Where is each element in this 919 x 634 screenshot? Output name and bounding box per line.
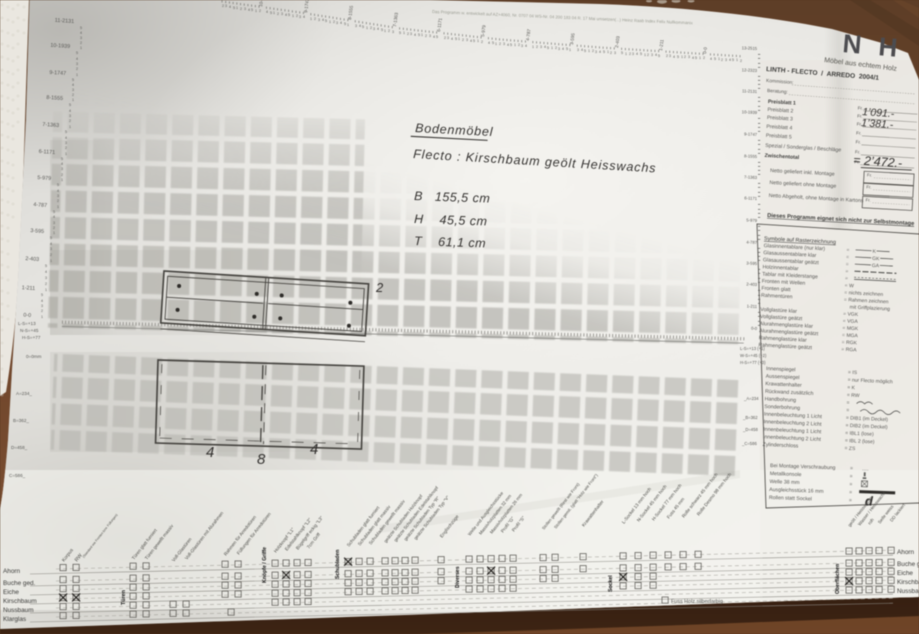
svg-text:4: 4 <box>562 47 564 51</box>
svg-text:1: 1 <box>273 11 275 15</box>
svg-text:4: 4 <box>581 48 583 52</box>
svg-text:4-787: 4-787 <box>746 239 758 245</box>
svg-text:4: 4 <box>310 441 318 458</box>
svg-text:5: 5 <box>61 157 63 161</box>
svg-text:13-2515: 13-2515 <box>742 45 758 51</box>
svg-text:=: = <box>849 498 852 504</box>
svg-text:2: 2 <box>647 53 649 57</box>
svg-text:5: 5 <box>658 54 660 58</box>
svg-text:1: 1 <box>57 205 59 209</box>
svg-text:6-1171: 6-1171 <box>39 149 56 156</box>
svg-text:4: 4 <box>76 57 78 61</box>
svg-text:4: 4 <box>266 10 268 14</box>
svg-text:4: 4 <box>248 8 250 12</box>
svg-text:4: 4 <box>53 215 55 219</box>
svg-text:1: 1 <box>292 14 294 18</box>
svg-text:H-S=+77 (+3): H-S=+77 (+3) <box>740 360 766 365</box>
svg-text:1: 1 <box>514 43 516 47</box>
svg-text:5: 5 <box>45 264 47 268</box>
svg-text:7-1363: 7-1363 <box>42 122 59 129</box>
svg-text:2: 2 <box>592 49 594 53</box>
svg-text:2: 2 <box>69 119 71 123</box>
svg-text:1: 1 <box>366 26 368 30</box>
svg-text:2: 2 <box>555 46 557 50</box>
svg-text:1: 1 <box>551 46 553 50</box>
svg-text:2: 2 <box>375 280 384 295</box>
svg-text:1: 1 <box>569 48 571 52</box>
svg-text:3: 3 <box>57 194 59 198</box>
svg-text:3-595: 3-595 <box>30 228 44 235</box>
svg-text:2: 2 <box>740 59 742 63</box>
svg-text:2: 2 <box>41 309 43 313</box>
svg-text:2: 2 <box>61 173 63 177</box>
svg-text:5: 5 <box>566 47 568 51</box>
svg-text:= MGK: = MGK <box>842 325 859 332</box>
svg-text:5-979: 5-979 <box>37 175 51 182</box>
svg-text:11-2131: 11-2131 <box>742 88 758 94</box>
svg-text:A=234_: A=234_ <box>16 391 32 396</box>
svg-text:1: 1 <box>384 29 386 33</box>
svg-text:5: 5 <box>57 183 59 187</box>
svg-text:5: 5 <box>381 28 383 32</box>
svg-text:5: 5 <box>325 19 327 23</box>
svg-text:5: 5 <box>344 22 346 26</box>
svg-text:‥‥: ‥‥ <box>862 466 869 472</box>
svg-text:3: 3 <box>318 18 320 22</box>
svg-text:Fr.: Fr. <box>855 139 861 144</box>
svg-text:4: 4 <box>61 162 63 166</box>
svg-text:2: 2 <box>259 9 261 13</box>
svg-text:4: 4 <box>655 53 657 57</box>
svg-text:3: 3 <box>614 51 616 55</box>
svg-text:9-1747: 9-1747 <box>49 70 66 77</box>
svg-text:B=362_: B=362_ <box>13 418 29 423</box>
svg-text:3: 3 <box>651 53 653 57</box>
svg-text:Buche ged.: Buche ged. <box>897 561 919 568</box>
svg-text:2: 2 <box>76 67 78 71</box>
svg-text:W-S=+45 (+2): W-S=+45 (+2) <box>740 353 767 358</box>
svg-text:1: 1 <box>80 46 82 50</box>
svg-text:5: 5 <box>69 103 71 107</box>
svg-text:3: 3 <box>45 276 47 280</box>
svg-text:Kirschbaum: Kirschbaum <box>3 598 37 605</box>
svg-text:=: = <box>849 490 852 496</box>
svg-text:4: 4 <box>285 13 287 17</box>
svg-text:4: 4 <box>692 56 694 60</box>
svg-text:4: 4 <box>303 15 305 19</box>
svg-text:Fr.: Fr. <box>856 130 862 135</box>
svg-text:Ahorn: Ahorn <box>897 549 914 556</box>
svg-text:= K: = K <box>847 385 856 391</box>
svg-text:T 61,1 cm: T 61,1 cm <box>414 234 486 251</box>
svg-text:1: 1 <box>76 73 78 77</box>
svg-text:8-1555: 8-1555 <box>46 95 63 102</box>
svg-text:3: 3 <box>447 36 449 40</box>
svg-text:0-0: 0-0 <box>751 326 758 331</box>
svg-text:1: 1 <box>61 178 63 182</box>
svg-text:2: 2 <box>222 4 224 8</box>
svg-text:4: 4 <box>377 27 379 31</box>
svg-text:4: 4 <box>340 21 342 25</box>
svg-text:_B=362: _B=362 <box>742 415 758 420</box>
svg-text:= IS: = IS <box>848 370 858 376</box>
svg-text:5: 5 <box>695 56 697 60</box>
svg-text:3: 3 <box>50 247 52 251</box>
svg-text:2: 2 <box>72 93 74 97</box>
svg-text:2: 2 <box>536 45 538 49</box>
svg-text:3: 3 <box>595 50 597 54</box>
svg-text:3: 3 <box>521 44 523 48</box>
svg-text:5: 5 <box>76 51 78 55</box>
svg-text:5: 5 <box>473 39 475 43</box>
svg-text:5: 5 <box>251 8 253 12</box>
svg-text:3: 3 <box>299 15 301 19</box>
svg-text:4: 4 <box>359 24 361 28</box>
svg-text:1: 1 <box>65 152 67 156</box>
svg-text:_A=234: _A=234 <box>743 396 759 401</box>
svg-text:2: 2 <box>629 52 631 56</box>
svg-text:4: 4 <box>470 39 472 43</box>
svg-text:3: 3 <box>244 7 246 11</box>
svg-text:2: 2 <box>277 12 279 16</box>
svg-text:1: 1 <box>736 58 738 62</box>
svg-text:Sockel: Sockel <box>608 575 614 592</box>
svg-text:5: 5 <box>510 43 512 47</box>
svg-text:=: = <box>849 482 852 488</box>
svg-text:3: 3 <box>53 221 55 225</box>
svg-text:4: 4 <box>544 45 546 49</box>
svg-text:= VGA: = VGA <box>843 318 859 325</box>
svg-text:2: 2 <box>407 32 409 36</box>
svg-text:3: 3 <box>41 304 43 308</box>
svg-text:=: = <box>850 466 853 472</box>
svg-text:4: 4 <box>729 58 731 62</box>
svg-text:4: 4 <box>206 444 214 461</box>
svg-text:Fuss Holz silberfarbig: Fuss Holz silberfarbig <box>671 599 723 605</box>
svg-text:2: 2 <box>57 199 59 203</box>
svg-text:3: 3 <box>466 38 468 42</box>
svg-text:N: N <box>841 28 862 60</box>
svg-text:5: 5 <box>677 55 679 59</box>
svg-text:GK: GK <box>872 256 880 262</box>
svg-text:Eiche: Eiche <box>897 570 913 577</box>
svg-text:1: 1 <box>607 50 609 54</box>
svg-text:4: 4 <box>414 33 416 37</box>
svg-text:4: 4 <box>72 83 74 87</box>
svg-text:3: 3 <box>688 55 690 59</box>
svg-text:4: 4 <box>433 35 435 39</box>
svg-text:3: 3 <box>558 47 560 51</box>
svg-text:= RW: = RW <box>847 393 860 400</box>
svg-text:5: 5 <box>640 52 642 56</box>
svg-text:_D=458: _D=458 <box>742 427 758 432</box>
svg-text:5: 5 <box>270 11 272 15</box>
svg-text:Oberflächen: Oberflächen <box>835 564 841 594</box>
svg-text:1: 1 <box>477 39 479 43</box>
svg-text:2: 2 <box>333 20 335 24</box>
svg-text:5: 5 <box>233 6 235 10</box>
svg-text:1: 1 <box>347 23 349 27</box>
svg-text:1-211: 1-211 <box>22 285 36 292</box>
svg-text:GA: GA <box>872 263 880 269</box>
svg-text:5: 5 <box>492 41 494 45</box>
svg-text:=: = <box>850 474 853 480</box>
svg-text:C=586_: C=586_ <box>9 473 26 478</box>
svg-text:6-1171: 6-1171 <box>744 195 758 201</box>
svg-text:_C=586: _C=586 <box>741 441 757 446</box>
svg-text:4: 4 <box>45 270 47 274</box>
svg-text:4: 4 <box>69 109 71 113</box>
svg-text:5: 5 <box>65 130 67 134</box>
svg-text:2: 2 <box>314 17 316 21</box>
svg-text:Diverses: Diverses <box>455 566 461 588</box>
svg-text:=: = <box>846 262 849 268</box>
svg-text:2: 2 <box>721 58 723 62</box>
svg-text:Nussbaum: Nussbaum <box>897 588 919 595</box>
svg-text:5: 5 <box>584 49 586 53</box>
svg-text:3: 3 <box>281 12 283 16</box>
svg-text:Klarglas: Klarglas <box>3 616 26 623</box>
svg-text:=: = <box>845 276 848 282</box>
svg-text:D=458_: D=458_ <box>11 445 28 450</box>
svg-text:= MGA: = MGA <box>842 333 859 340</box>
svg-text:H-S=+77: H-S=+77 <box>22 335 41 340</box>
svg-text:1: 1 <box>495 42 497 46</box>
svg-text:3: 3 <box>69 114 71 118</box>
svg-text:1: 1 <box>69 125 71 129</box>
svg-text:= RGA: = RGA <box>841 347 857 354</box>
svg-text:Schubladen: Schubladen <box>335 550 341 579</box>
svg-text:Fr.: Fr. <box>867 172 872 177</box>
svg-text:1: 1 <box>625 52 627 56</box>
svg-text:1: 1 <box>255 9 257 13</box>
svg-text:2: 2 <box>444 36 446 40</box>
svg-text:2: 2 <box>684 55 686 59</box>
svg-text:2: 2 <box>53 226 55 230</box>
svg-text:10-1939: 10-1939 <box>742 109 758 115</box>
svg-text:4: 4 <box>322 18 324 22</box>
svg-text:3: 3 <box>410 32 412 36</box>
svg-text:1: 1 <box>588 49 590 53</box>
svg-text:1: 1 <box>53 231 55 235</box>
svg-text:5: 5 <box>547 46 549 50</box>
svg-text:1: 1 <box>532 45 534 49</box>
svg-text:3: 3 <box>429 34 431 38</box>
svg-text:4: 4 <box>599 50 601 54</box>
svg-text:= W: = W <box>845 283 855 289</box>
svg-text:1: 1 <box>41 315 43 319</box>
svg-text:1: 1 <box>421 33 423 37</box>
svg-text:2: 2 <box>50 253 52 257</box>
svg-text:2: 2 <box>80 41 82 45</box>
svg-text:Ahorn: Ahorn <box>3 568 20 575</box>
svg-text:3-595: 3-595 <box>746 260 758 266</box>
svg-text:L-S=+13: L-S=+13 <box>18 321 36 326</box>
svg-text:Eiche: Eiche <box>3 589 19 596</box>
svg-text:1: 1 <box>72 98 74 102</box>
svg-text:3: 3 <box>61 167 63 171</box>
svg-text:8: 8 <box>257 451 266 468</box>
svg-text:5: 5 <box>621 51 623 55</box>
svg-text:H 45,5 cm: H 45,5 cm <box>414 212 488 229</box>
svg-text:H: H <box>877 31 898 63</box>
svg-text:3: 3 <box>225 4 227 8</box>
svg-text:Fr.: Fr. <box>865 197 870 202</box>
svg-text:5: 5 <box>418 33 420 37</box>
svg-text:1: 1 <box>45 288 47 292</box>
svg-text:4: 4 <box>57 189 59 193</box>
svg-text:5: 5 <box>436 35 438 39</box>
svg-text:4: 4 <box>673 55 675 59</box>
svg-text:1: 1 <box>403 31 405 35</box>
svg-text:N-S=+45: N-S=+45 <box>20 328 39 333</box>
svg-text:5: 5 <box>288 13 290 17</box>
svg-text:= ZS: = ZS <box>844 446 856 453</box>
svg-text:2: 2 <box>481 40 483 44</box>
svg-text:2: 2 <box>610 51 612 55</box>
svg-text:5: 5 <box>53 210 55 214</box>
svg-text:4-787: 4-787 <box>33 202 47 209</box>
svg-text:3: 3 <box>725 58 727 62</box>
svg-text:1’381.-: 1’381.- <box>861 117 894 131</box>
svg-text:3: 3 <box>355 24 357 28</box>
svg-text:B 155,5 cm: B 155,5 cm <box>414 189 491 206</box>
svg-text:=: = <box>846 255 849 261</box>
svg-text:3: 3 <box>392 30 394 34</box>
svg-text:4: 4 <box>710 57 712 61</box>
svg-text:5: 5 <box>50 236 52 240</box>
svg-text:4: 4 <box>451 37 453 41</box>
svg-text:Knöpfe / Griffe: Knöpfe / Griffe <box>262 547 268 583</box>
svg-text:4: 4 <box>488 41 490 45</box>
svg-text:Welle 38 mm: Welle 38 mm <box>769 479 799 486</box>
svg-text:4: 4 <box>636 52 638 56</box>
svg-text:3: 3 <box>503 42 505 46</box>
svg-text:8-1555: 8-1555 <box>744 153 758 159</box>
svg-text:1: 1 <box>718 57 720 61</box>
svg-text:9-1747: 9-1747 <box>744 131 758 137</box>
svg-text:5: 5 <box>399 31 401 35</box>
svg-text:3: 3 <box>373 27 375 31</box>
svg-text:Türen: Türen <box>121 590 127 605</box>
svg-text:=: = <box>845 269 848 275</box>
svg-text:2: 2 <box>388 29 390 33</box>
svg-text:3: 3 <box>72 88 74 92</box>
svg-text:=: = <box>846 408 849 414</box>
svg-text:5: 5 <box>732 58 734 62</box>
svg-text:0-0: 0-0 <box>23 312 31 319</box>
svg-text:Nussbaum: Nussbaum <box>3 607 34 614</box>
svg-text:5: 5 <box>41 293 43 297</box>
svg-text:0-0: 0-0 <box>702 46 708 54</box>
svg-text:3: 3 <box>80 36 82 40</box>
svg-text:4: 4 <box>41 299 43 303</box>
svg-text:= VGK: = VGK <box>843 311 859 318</box>
svg-text:4: 4 <box>80 31 82 35</box>
svg-text:Metallkonsole: Metallkonsole <box>770 471 802 478</box>
svg-text:4: 4 <box>229 5 231 9</box>
svg-text:3: 3 <box>540 45 542 49</box>
svg-text:1: 1 <box>699 56 701 60</box>
svg-text:2: 2 <box>240 7 242 11</box>
svg-text:2: 2 <box>65 146 67 150</box>
svg-text:3: 3 <box>65 141 67 145</box>
svg-text:0=0mm: 0=0mm <box>26 354 42 359</box>
svg-text:4: 4 <box>525 44 527 48</box>
svg-text:5: 5 <box>362 25 364 29</box>
svg-text:5: 5 <box>455 37 457 41</box>
svg-text:12-2323: 12-2323 <box>742 67 758 73</box>
svg-text:Kirschbaum: Kirschbaum <box>897 579 919 586</box>
svg-text:3: 3 <box>669 54 671 58</box>
svg-text:Fr.: Fr. <box>866 184 871 189</box>
svg-text:2-403: 2-403 <box>746 281 758 287</box>
svg-text:1: 1 <box>681 55 683 59</box>
svg-text:Buche ged.: Buche ged. <box>3 580 36 587</box>
svg-text:=: = <box>846 400 849 406</box>
svg-text:5: 5 <box>603 50 605 54</box>
svg-text:2: 2 <box>425 34 427 38</box>
svg-text:2: 2 <box>462 38 464 42</box>
svg-text:2: 2 <box>370 26 372 30</box>
svg-text:5: 5 <box>80 26 82 30</box>
svg-text:2: 2 <box>45 282 47 286</box>
svg-text:4: 4 <box>65 136 67 140</box>
svg-text:3: 3 <box>632 52 634 56</box>
svg-text:2: 2 <box>703 56 705 60</box>
svg-text:=: = <box>846 247 849 253</box>
svg-text:= RGK: = RGK <box>842 340 858 347</box>
svg-text:1: 1 <box>310 17 312 21</box>
svg-text:1: 1 <box>329 20 331 24</box>
svg-text:3: 3 <box>336 21 338 25</box>
svg-text:1: 1 <box>50 259 52 263</box>
svg-text:2: 2 <box>518 43 520 47</box>
svg-text:2-403: 2-403 <box>25 256 39 263</box>
svg-text:1: 1 <box>458 37 460 41</box>
svg-text:5: 5 <box>72 78 74 82</box>
svg-text:3: 3 <box>76 62 78 66</box>
svg-text:5-979: 5-979 <box>746 217 758 223</box>
svg-text:5: 5 <box>714 57 716 61</box>
svg-text:4: 4 <box>50 242 52 246</box>
svg-text:1-211: 1-211 <box>747 303 758 309</box>
svg-text:2: 2 <box>666 54 668 58</box>
svg-text:1: 1 <box>644 53 646 57</box>
svg-text:7-1363: 7-1363 <box>744 174 758 180</box>
svg-text:4: 4 <box>507 43 509 47</box>
svg-text:3: 3 <box>577 48 579 52</box>
svg-text:1: 1 <box>236 6 238 10</box>
svg-text:2: 2 <box>296 14 298 18</box>
svg-text:2: 2 <box>499 42 501 46</box>
